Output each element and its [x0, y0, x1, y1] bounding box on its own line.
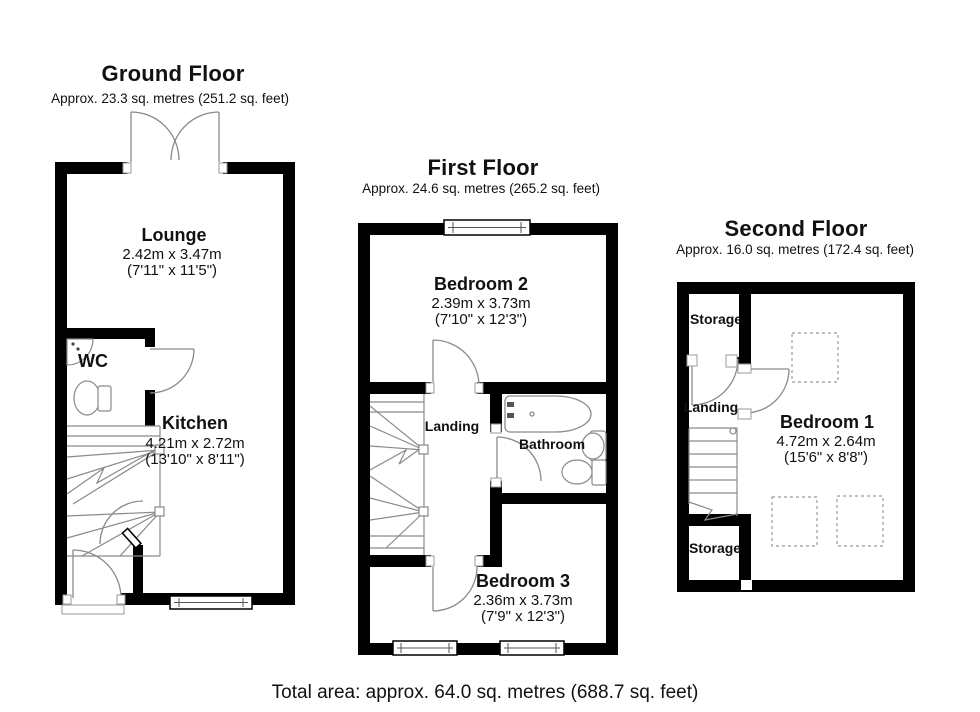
- bathroom-sink-icon: [582, 431, 606, 461]
- room-dims-bedroom1-imperial: (15'6" x 8'8"): [784, 450, 868, 466]
- door-jambs-bedroom1: [738, 364, 751, 419]
- room-dims-kitchen-imperial: (13'10" x 8'11"): [145, 452, 245, 468]
- floor-title-first: First Floor: [428, 156, 539, 179]
- roof-window-outline-bottom-right: [837, 496, 883, 546]
- bedroom3-door: [433, 567, 477, 611]
- room-label-bedroom1: Bedroom 1: [780, 413, 874, 432]
- room-label-wc: WC: [78, 352, 108, 371]
- bedroom2-door: [433, 340, 479, 386]
- kitchen-window: [170, 596, 252, 609]
- front-door: [73, 550, 121, 598]
- floor-title-ground: Ground Floor: [102, 62, 245, 85]
- room-label-storage-bottom: Storage: [689, 541, 741, 556]
- room-dims-lounge-metric: 2.42m x 3.47m: [122, 247, 221, 263]
- room-label-bedroom2: Bedroom 2: [434, 275, 528, 294]
- roof-window-outline-top: [792, 333, 838, 382]
- room-label-landing-first: Landing: [425, 419, 479, 434]
- room-dims-bedroom3-imperial: (7'9" x 12'3"): [481, 609, 565, 625]
- door-jambs-bedroom2: [426, 383, 483, 393]
- room-label-landing-second: Landing: [684, 400, 738, 415]
- bedroom3-window-left: [393, 641, 457, 655]
- wc-toilet-icon: [74, 381, 111, 415]
- floor-subtitle-second: Approx. 16.0 sq. metres (172.4 sq. feet): [676, 243, 914, 257]
- bathroom-toilet-icon: [562, 460, 606, 485]
- floorplan-page: { "document_type": "property-floorplan",…: [0, 0, 980, 712]
- room-dims-bedroom3-metric: 2.36m x 3.73m: [473, 593, 572, 609]
- room-label-lounge: Lounge: [142, 226, 207, 245]
- wc-door: [150, 349, 194, 393]
- roof-window-outline-bottom-left: [772, 497, 817, 546]
- front-door-threshold: [62, 605, 124, 614]
- floor-subtitle-first: Approx. 24.6 sq. metres (265.2 sq. feet): [362, 182, 600, 196]
- room-label-kitchen: Kitchen: [162, 414, 228, 433]
- bedroom1-door: [745, 369, 789, 413]
- bottom-wall-gap: [741, 580, 752, 590]
- room-label-bedroom3: Bedroom 3: [476, 572, 570, 591]
- room-dims-bedroom1-metric: 4.72m x 2.64m: [776, 434, 875, 450]
- kitchen-door: [100, 501, 143, 548]
- room-label-storage-top: Storage: [690, 312, 742, 327]
- bedroom2-window: [444, 220, 530, 235]
- bedroom3-window-right: [500, 641, 564, 655]
- bathtub-icon: [505, 396, 591, 432]
- door-jambs-french: [123, 163, 227, 173]
- door-jambs-bathroom: [491, 424, 501, 487]
- french-doors: [131, 112, 219, 162]
- room-dims-lounge-imperial: (7'11" x 11'5"): [127, 263, 217, 279]
- total-area-text: Total area: approx. 64.0 sq. metres (688…: [272, 683, 699, 703]
- second-staircase: [689, 428, 737, 520]
- floor-title-second: Second Floor: [725, 217, 868, 240]
- room-dims-bedroom2-metric: 2.39m x 3.73m: [431, 296, 530, 312]
- first-staircase: [370, 394, 428, 555]
- room-label-bathroom: Bathroom: [519, 437, 585, 452]
- door-jambs-bedroom3: [426, 556, 483, 566]
- floor-subtitle-ground: Approx. 23.3 sq. metres (251.2 sq. feet): [51, 92, 289, 106]
- door-jambs-storage: [687, 355, 737, 367]
- front-door-opening: [67, 593, 121, 605]
- room-dims-bedroom2-imperial: (7'10" x 12'3"): [435, 312, 527, 328]
- room-dims-kitchen-metric: 4.21m x 2.72m: [145, 436, 244, 452]
